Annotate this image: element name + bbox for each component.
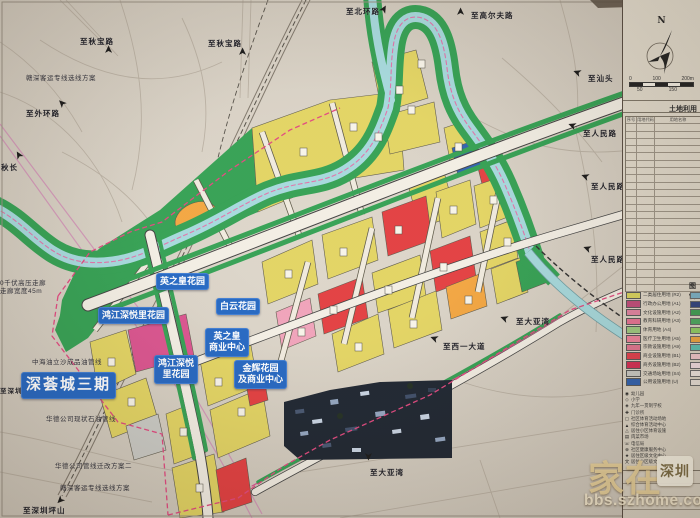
legend-swatch-right [690, 344, 700, 351]
legend-swatch [626, 335, 641, 343]
dir-label-qiuchang: 秋长 [1, 162, 18, 173]
project-label-baiyun-garden: 白云花园 [216, 298, 260, 315]
legend-swatch [626, 361, 641, 369]
symbol-icon: ▲ [623, 423, 631, 428]
legend-row: 交通场站用地 (S4) [623, 369, 700, 378]
legend-row: 行政办公用地 (A1) [623, 300, 700, 309]
scale-tick: 0 [629, 76, 632, 82]
legend-row: 教育科研用地 (A3) [623, 317, 700, 326]
scale-tick: 100 [652, 76, 660, 82]
symbol-label: 幼儿园 [631, 391, 644, 397]
symbol-icon: ◇ [623, 397, 631, 403]
map-sheet-side-panel: N 0 100 200m 50 150 土地利用 [622, 0, 700, 518]
compass-arrow-icon [642, 28, 682, 80]
table-header: 序号 [626, 117, 637, 123]
scale-numbers-bottom: 50 150 [637, 87, 677, 93]
planning-map-photo: 至秋宝路 ➤ 至秋宝路 ➤ 至外环路 ➤ 秋长 ➤ 至北环路 ➤ 至高尔夫路 ➤… [0, 0, 700, 518]
legend-swatch [626, 378, 641, 386]
project-label-hongjiang-shenyueli-garden: 鸿江深悦里花园 [98, 307, 169, 324]
scale-tick: 50 [637, 87, 643, 93]
table-row [626, 205, 700, 212]
legend-swatch [626, 370, 641, 378]
legend-swatch-right [690, 353, 700, 360]
legend-label: 教育科研用地 (A3) [643, 318, 681, 324]
annotation-hv-corridor: 0千伏高压走廊 走廊宽度45m [0, 280, 46, 296]
table-row [626, 226, 700, 233]
symbol-legend-row: 文居住小区级文化站 [623, 459, 700, 465]
legend-swatch [626, 318, 641, 326]
legend-swatch-right [690, 292, 700, 299]
annotation-huade-pipeline: 华德公司现状石油管线 [46, 416, 116, 424]
symbol-icon: △ [623, 428, 631, 434]
dir-label-shenzhen-pingshan: 至深圳坪山 [23, 505, 66, 516]
symbol-label: 门诊所 [631, 410, 644, 416]
table-row [626, 139, 700, 146]
table-row [626, 197, 700, 204]
dir-label-shantou: 至汕头 [588, 73, 614, 84]
legend-swatch [626, 344, 641, 352]
legend-swatch [626, 292, 641, 300]
legend-swatch [626, 309, 641, 317]
symbol-icon: ✚ [623, 410, 631, 416]
legend-row: 公用设施用地 (U) [623, 378, 700, 387]
legend-swatch [626, 300, 641, 308]
compass-north: N [623, 10, 700, 80]
table-row [626, 183, 700, 190]
annotation-rail-scheme-bottom: 赣深客运专线选线方案 [60, 485, 130, 493]
table-row [626, 263, 700, 270]
legend-swatch [626, 352, 641, 360]
scale-bar: 0 100 200m 50 150 [623, 76, 700, 93]
legend-label: 体育用地 (A4) [643, 327, 671, 333]
legend-swatch-right [690, 327, 700, 334]
table-row [626, 124, 700, 131]
legend-row: 商务设施用地 (B2) [623, 361, 700, 370]
table-row [626, 256, 700, 263]
land-use-table-title: 土地利用 [669, 104, 697, 114]
symbol-label: 综合体育活动中心 [631, 422, 666, 428]
legend-label: 交通场站用地 (S4) [643, 371, 681, 377]
scale-tick: 150 [669, 87, 677, 93]
legend-row: 商业设施用地 (B1) [623, 352, 700, 361]
legend-label: 公用设施用地 (U) [643, 379, 678, 385]
symbol-icon: ▤ [623, 434, 631, 440]
legend-row: 宗教设施用地 (A9) [623, 343, 700, 352]
table-header: 用地代码 [637, 117, 655, 123]
legend-label: 文化设施用地 (A2) [643, 310, 681, 316]
project-label-yingzhihuang-commercial-center: 英之皇 商业中心 [205, 328, 249, 357]
scale-tick: 200m [681, 76, 694, 82]
dir-label-renmin-road-2: 至人民路 [591, 181, 625, 192]
project-label-hongjiang-shenyueli: 鸿江深悦 里花园 [154, 355, 198, 384]
annotation-oil-pipeline-cnooc: 中海油立沙成品油管线 [32, 359, 102, 367]
table-row [626, 175, 700, 182]
legend-swatch-right [690, 301, 700, 308]
symbol-label: 社区健康服务中心 [631, 447, 666, 453]
legend-swatch [626, 326, 641, 334]
direction-arrow-icon: ➤ [238, 47, 249, 56]
dir-label-renmin-road-1: 至人民路 [583, 128, 617, 139]
symbol-icon: ⊕ [623, 447, 631, 453]
table-row [626, 153, 700, 160]
table-header: 用地名称 [655, 117, 700, 123]
legend-label: 商务设施用地 (B2) [643, 362, 681, 368]
legend-label: 宗教设施用地 (A9) [643, 344, 681, 350]
legend-swatch-right [690, 309, 700, 316]
project-label-jinhui-garden-commercial: 金辉花园 及商业中心 [234, 360, 287, 389]
dir-label-outer-ring-road: 至外环路 [26, 108, 60, 119]
dir-label-dayawan-east: 至大亚湾 [516, 316, 550, 327]
legend-swatch-right [690, 336, 700, 343]
title-block [623, 470, 700, 518]
symbol-label: 电信局 [631, 441, 644, 447]
table-row [626, 161, 700, 168]
table-row [626, 190, 700, 197]
symbol-label: 居住小区级文化站 [631, 459, 666, 465]
symbol-icon: ▢ [623, 416, 631, 422]
legend-row: 文化设施用地 (A2) [623, 308, 700, 317]
legend-label: 二类居住用地 (R2) [643, 292, 681, 298]
legend-row: 二类居住用地 (R2) [623, 291, 700, 300]
symbol-icon: 文 [623, 459, 631, 465]
table-row [626, 219, 700, 226]
project-label-yingzhihuang-garden: 英之皇花园 [156, 273, 209, 290]
symbol-label: 肉菜市场 [631, 434, 649, 440]
symbol-label: 居住小区体育设施 [631, 428, 666, 434]
dir-label-renmin-road-3: 至人民路 [591, 254, 625, 265]
table-row [626, 241, 700, 248]
legend-swatch-right [690, 318, 700, 325]
direction-arrow-icon: ➤ [362, 452, 373, 461]
legend-label: 商业设施用地 (B1) [643, 353, 681, 359]
dir-label-xiyi-avenue: 至西一大道 [443, 341, 486, 352]
symbol-label: 九年一贯制学校 [631, 403, 662, 409]
symbol-legend: ◉幼儿园◇小学◈九年一贯制学校✚门诊所▢社区体育活动场地▲综合体育活动中心△居住… [623, 391, 700, 465]
table-row [626, 234, 700, 241]
symbol-label: 居住区级文化中心 [631, 453, 666, 459]
table-row [626, 132, 700, 139]
table-row [626, 168, 700, 175]
legend-swatch-right [690, 370, 700, 377]
land-use-table: 序号用地代码用地名称 [625, 116, 700, 292]
symbol-icon: ◉ [623, 391, 631, 397]
direction-arrow-icon: ➤ [456, 7, 467, 16]
north-label: N [657, 16, 665, 26]
symbol-label: 社区体育活动场地 [631, 416, 666, 422]
legend-swatch-right [690, 379, 700, 386]
dir-label-shenzhen: 至深圳 [0, 385, 23, 395]
table-row [626, 212, 700, 219]
legend-swatch-right [690, 362, 700, 369]
legend-row: 体育用地 (A4) [623, 326, 700, 335]
symbol-icon: ☏ [623, 441, 631, 447]
project-label-shenhuicheng-phase3: 深荟城三期 [21, 372, 116, 399]
table-row [626, 146, 700, 153]
table-row [626, 270, 700, 277]
land-use-legend: 二类居住用地 (R2)行政办公用地 (A1)文化设施用地 (A2)教育科研用地 … [623, 291, 700, 387]
direction-arrow-icon: ➤ [104, 45, 115, 54]
table-row [626, 248, 700, 255]
dir-label-golf-road: 至高尔夫路 [471, 10, 514, 21]
dir-label-north-ring-road: 至北环路 [346, 6, 380, 17]
annotation-rail-scheme-top: 赣深客运专线选线方案 [26, 75, 96, 83]
legend-label: 医疗卫生用地 (A5) [643, 336, 681, 342]
symbol-label: 小学 [631, 397, 640, 403]
symbol-icon: ◈ [623, 403, 631, 409]
annotation-huade-relocation: 华德公司管线迁改方案二 [55, 463, 132, 471]
legend-label: 行政办公用地 (A1) [643, 301, 681, 307]
dir-label-dayawan-south: 至大亚湾 [370, 467, 404, 478]
legend-row: 医疗卫生用地 (A5) [623, 334, 700, 343]
